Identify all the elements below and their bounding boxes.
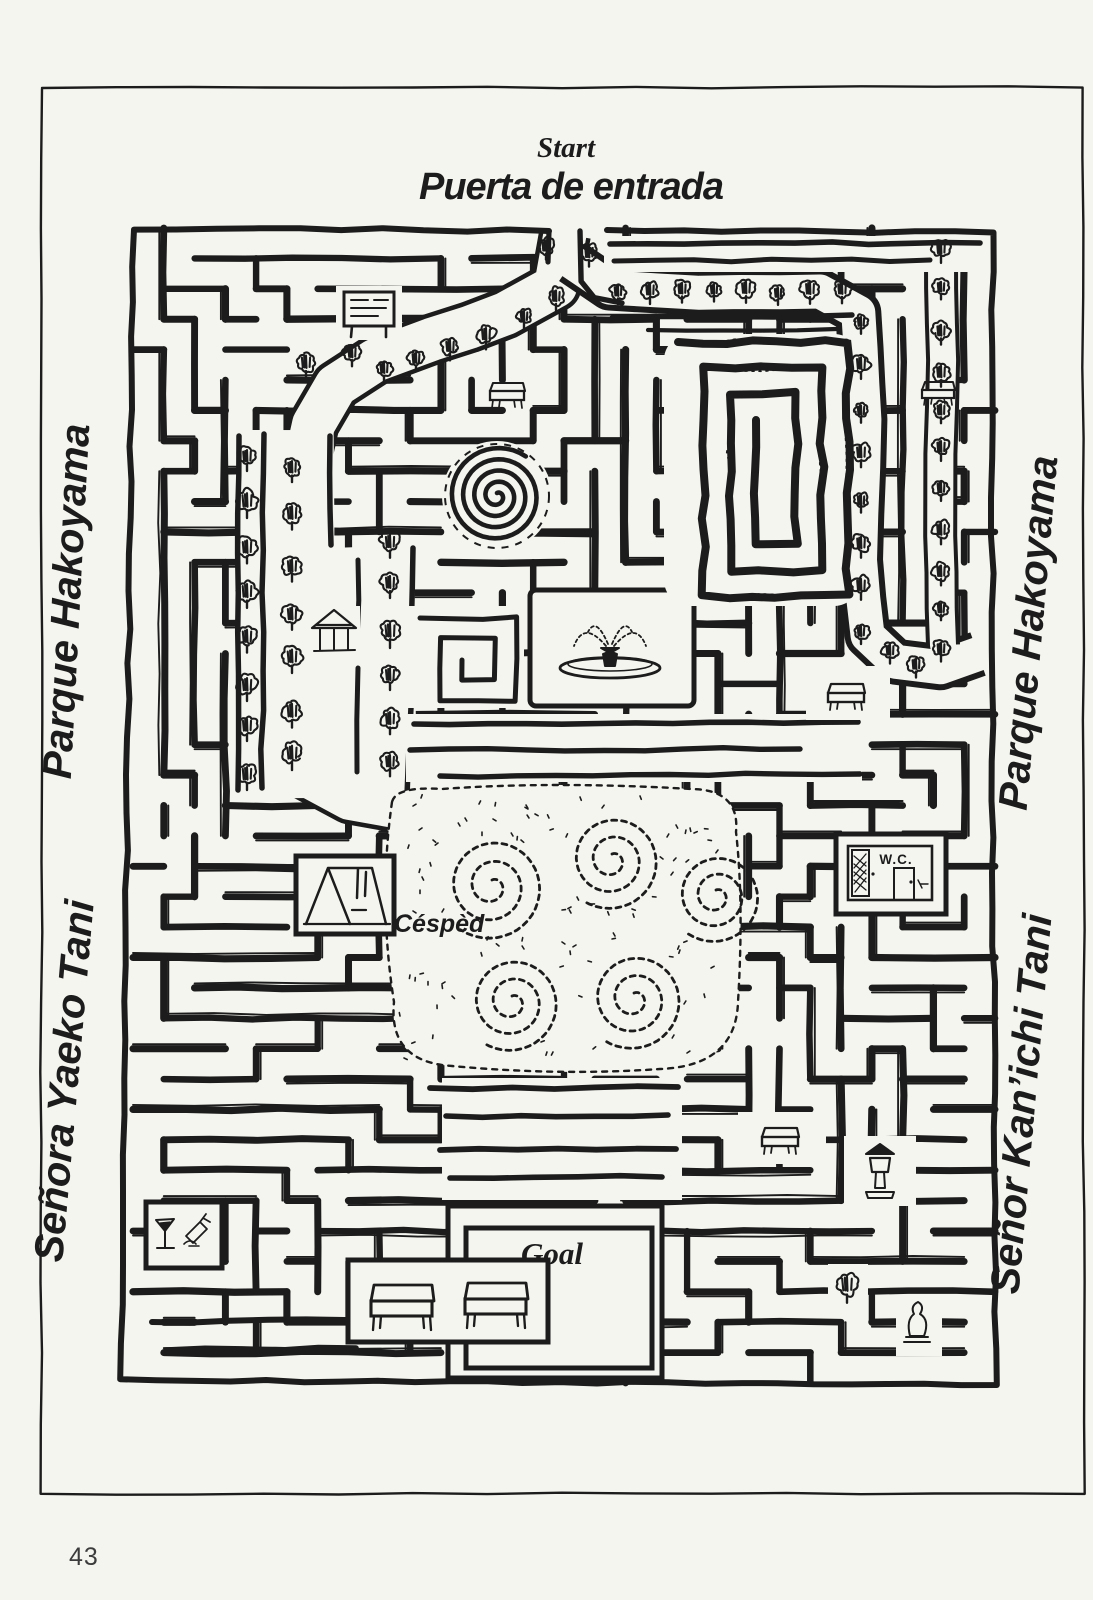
svg-text:Puerta de entrada: Puerta de entrada	[419, 166, 724, 208]
svg-text:Start: Start	[537, 132, 596, 164]
svg-text:Céspèd: Céspèd	[394, 910, 485, 938]
svg-text:W.C.: W.C.	[879, 852, 912, 867]
svg-text:43: 43	[69, 1543, 99, 1571]
